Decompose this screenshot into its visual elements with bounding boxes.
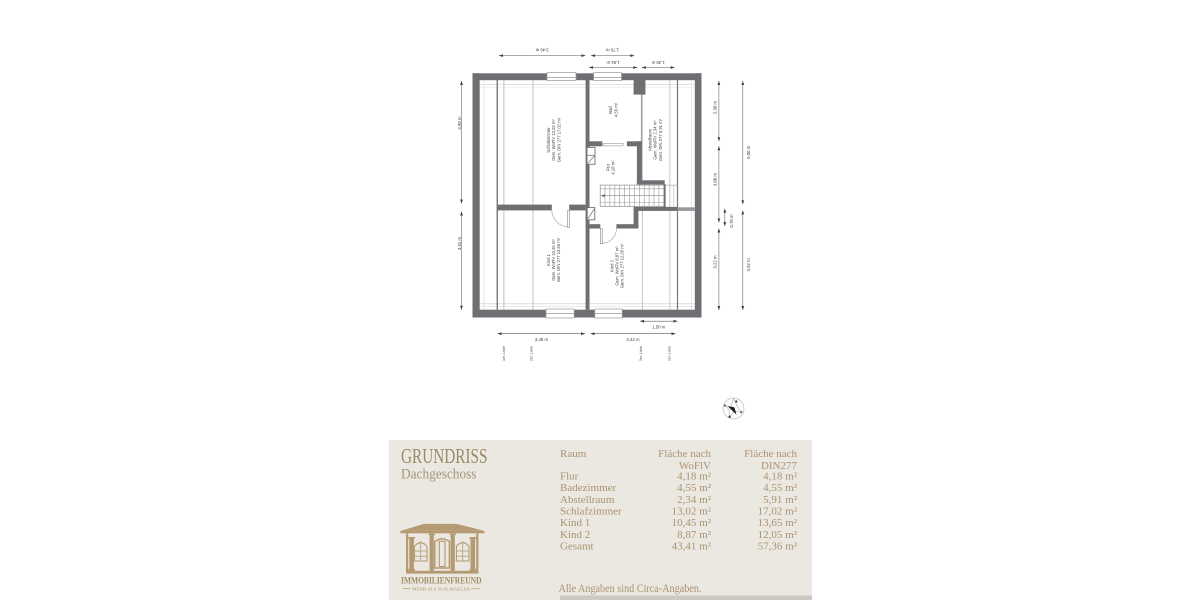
svg-text:4,18 m²: 4,18 m² [677, 470, 712, 482]
svg-text:4,90 m: 4,90 m [457, 116, 462, 130]
svg-text:3,46 m: 3,46 m [535, 48, 549, 53]
svg-text:Flur: Flur [560, 470, 579, 482]
svg-text:Gem. DIN 277 13,65 m²: Gem. DIN 277 13,65 m² [556, 237, 561, 282]
svg-text:4,55 m²: 4,55 m² [613, 102, 618, 117]
svg-text:4,18 m²: 4,18 m² [763, 470, 798, 482]
svg-text:5,91 m²: 5,91 m² [763, 494, 798, 506]
svg-text:MEHR ALS NUR MAKLER: MEHR ALS NUR MAKLER [412, 587, 471, 592]
svg-text:Alle Angaben sind Circa-Angabe: Alle Angaben sind Circa-Angaben. [559, 583, 702, 595]
svg-text:4,55 m²: 4,55 m² [677, 482, 712, 494]
svg-text:IMMOBILIENFREUND: IMMOBILIENFREUND [401, 576, 482, 586]
svg-text:Abstellraum: Abstellraum [560, 494, 615, 506]
svg-text:2m Linie: 2m Linie [638, 345, 643, 361]
svg-text:Kind 2: Kind 2 [560, 529, 590, 541]
svg-text:1m Linie: 1m Linie [501, 345, 506, 361]
svg-text:3,42 m: 3,42 m [626, 337, 640, 342]
svg-text:3,22 m: 3,22 m [713, 255, 718, 269]
svg-text:1m Linie: 1m Linie [666, 345, 671, 361]
svg-text:17,02 m²: 17,02 m² [758, 506, 798, 518]
svg-text:4,18 m²: 4,18 m² [611, 160, 616, 175]
svg-text:1,50 m: 1,50 m [652, 325, 666, 330]
svg-text:Fläche nach: Fläche nach [744, 448, 797, 460]
svg-text:2,34 m²: 2,34 m² [677, 494, 712, 506]
svg-text:4,55 m²: 4,55 m² [763, 482, 798, 494]
svg-text:12,05 m²: 12,05 m² [758, 529, 798, 541]
svg-text:3,92 m: 3,92 m [457, 237, 462, 251]
svg-text:Gem. DIN 277 5,91 m²: Gem. DIN 277 5,91 m² [658, 118, 663, 161]
svg-text:2,38 m: 2,38 m [713, 101, 718, 115]
svg-text:Schlafzimmer: Schlafzimmer [560, 506, 622, 518]
svg-text:Badezimmer: Badezimmer [560, 482, 617, 494]
svg-text:3,00 m: 3,00 m [713, 173, 718, 187]
svg-text:Fläche nach: Fläche nach [658, 448, 711, 460]
svg-text:3,48 m: 3,48 m [535, 337, 549, 342]
svg-text:Kind 1: Kind 1 [560, 517, 590, 529]
svg-text:GRUNDRISS: GRUNDRISS [401, 444, 488, 468]
svg-text:13,02 m²: 13,02 m² [672, 506, 712, 518]
svg-text:8,87 m²: 8,87 m² [677, 529, 712, 541]
svg-text:1,35 m: 1,35 m [651, 60, 665, 65]
svg-text:3,92 m: 3,92 m [746, 258, 751, 272]
svg-text:1,76 m: 1,76 m [606, 48, 620, 53]
svg-text:2m Linie: 2m Linie [528, 345, 533, 361]
svg-text:57,36 m²: 57,36 m² [758, 541, 798, 553]
svg-text:Gem. DIN 277 17,02 m²: Gem. DIN 277 17,02 m² [556, 117, 561, 162]
svg-text:1,94 m: 1,94 m [606, 60, 620, 65]
svg-text:13,65 m²: 13,65 m² [758, 517, 798, 529]
svg-text:Dachgeschoss: Dachgeschoss [401, 467, 477, 483]
svg-text:Gesamt: Gesamt [560, 541, 594, 553]
svg-text:10,45 m²: 10,45 m² [672, 517, 712, 529]
svg-text:Raum: Raum [560, 448, 587, 460]
svg-text:0,70 m: 0,70 m [729, 214, 734, 228]
svg-text:Gem. DIN 277 12,05 m²: Gem. DIN 277 12,05 m² [620, 243, 625, 288]
svg-text:43,41 m²: 43,41 m² [672, 541, 712, 553]
svg-text:5,00 m: 5,00 m [746, 145, 751, 159]
